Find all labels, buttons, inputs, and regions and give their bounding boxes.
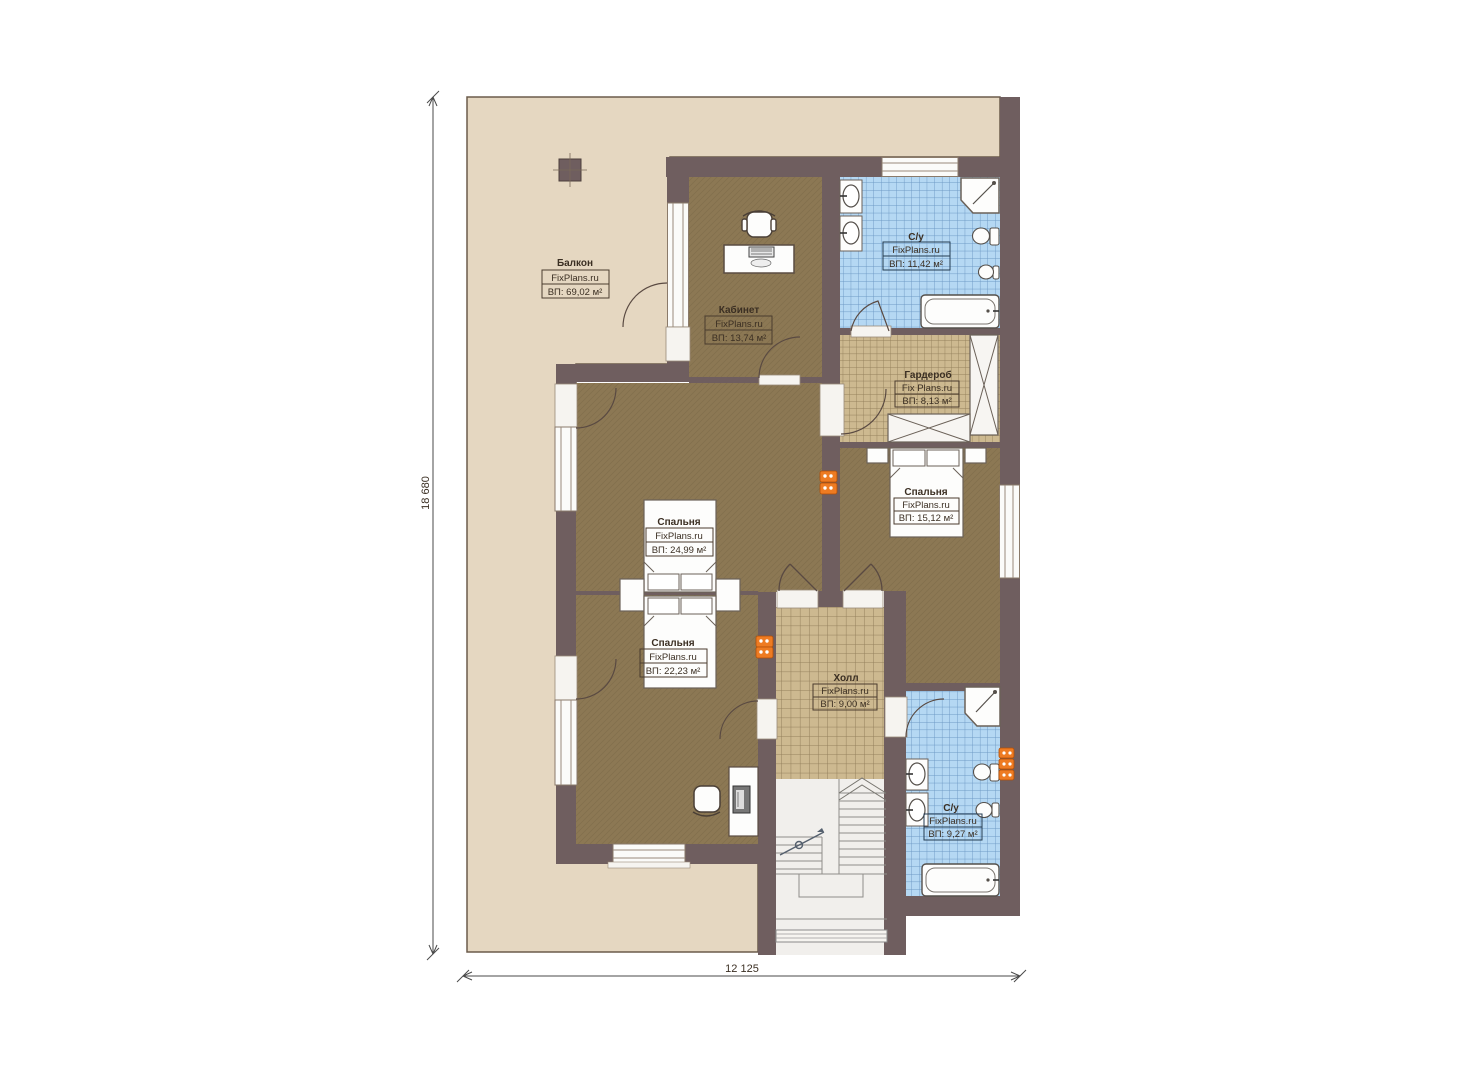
svg-text:FixPlans.ru: FixPlans.ru xyxy=(902,500,950,511)
svg-text:12 125: 12 125 xyxy=(725,963,759,975)
svg-text:ВП: 9,00 м²: ВП: 9,00 м² xyxy=(820,699,869,710)
svg-text:Fix Plans.ru: Fix Plans.ru xyxy=(902,383,952,394)
svg-text:ВП: 69,02 м²: ВП: 69,02 м² xyxy=(548,287,603,298)
svg-text:FixPlans.ru: FixPlans.ru xyxy=(821,686,869,697)
svg-text:Спальня: Спальня xyxy=(657,517,700,528)
svg-text:FixPlans.ru: FixPlans.ru xyxy=(892,245,940,256)
svg-text:FixPlans.ru: FixPlans.ru xyxy=(649,652,697,663)
svg-text:С/у: С/у xyxy=(943,803,959,814)
svg-text:Спальня: Спальня xyxy=(651,638,694,649)
svg-text:ВП: 22,23 м²: ВП: 22,23 м² xyxy=(646,666,701,677)
svg-text:Кабинет: Кабинет xyxy=(719,304,760,316)
svg-text:Спальня: Спальня xyxy=(904,487,947,498)
svg-text:Холл: Холл xyxy=(833,673,858,684)
svg-text:ВП: 8,13 м²: ВП: 8,13 м² xyxy=(902,396,951,407)
svg-text:ВП: 9,27 м²: ВП: 9,27 м² xyxy=(928,829,977,840)
svg-text:FixPlans.ru: FixPlans.ru xyxy=(929,816,977,827)
svg-text:FixPlans.ru: FixPlans.ru xyxy=(715,319,763,330)
svg-text:Балкон: Балкон xyxy=(557,258,593,269)
svg-text:18 680: 18 680 xyxy=(420,476,432,510)
svg-text:ВП: 13,74 м²: ВП: 13,74 м² xyxy=(712,333,767,344)
svg-text:С/у: С/у xyxy=(908,232,924,243)
svg-text:FixPlans.ru: FixPlans.ru xyxy=(655,531,703,542)
svg-text:ВП: 24,99 м²: ВП: 24,99 м² xyxy=(652,545,707,556)
svg-text:FixPlans.ru: FixPlans.ru xyxy=(551,273,599,284)
svg-text:ВП: 11,42 м²: ВП: 11,42 м² xyxy=(889,259,943,270)
svg-text:Гардероб: Гардероб xyxy=(904,369,951,381)
svg-text:ВП: 15,12 м²: ВП: 15,12 м² xyxy=(899,513,954,524)
